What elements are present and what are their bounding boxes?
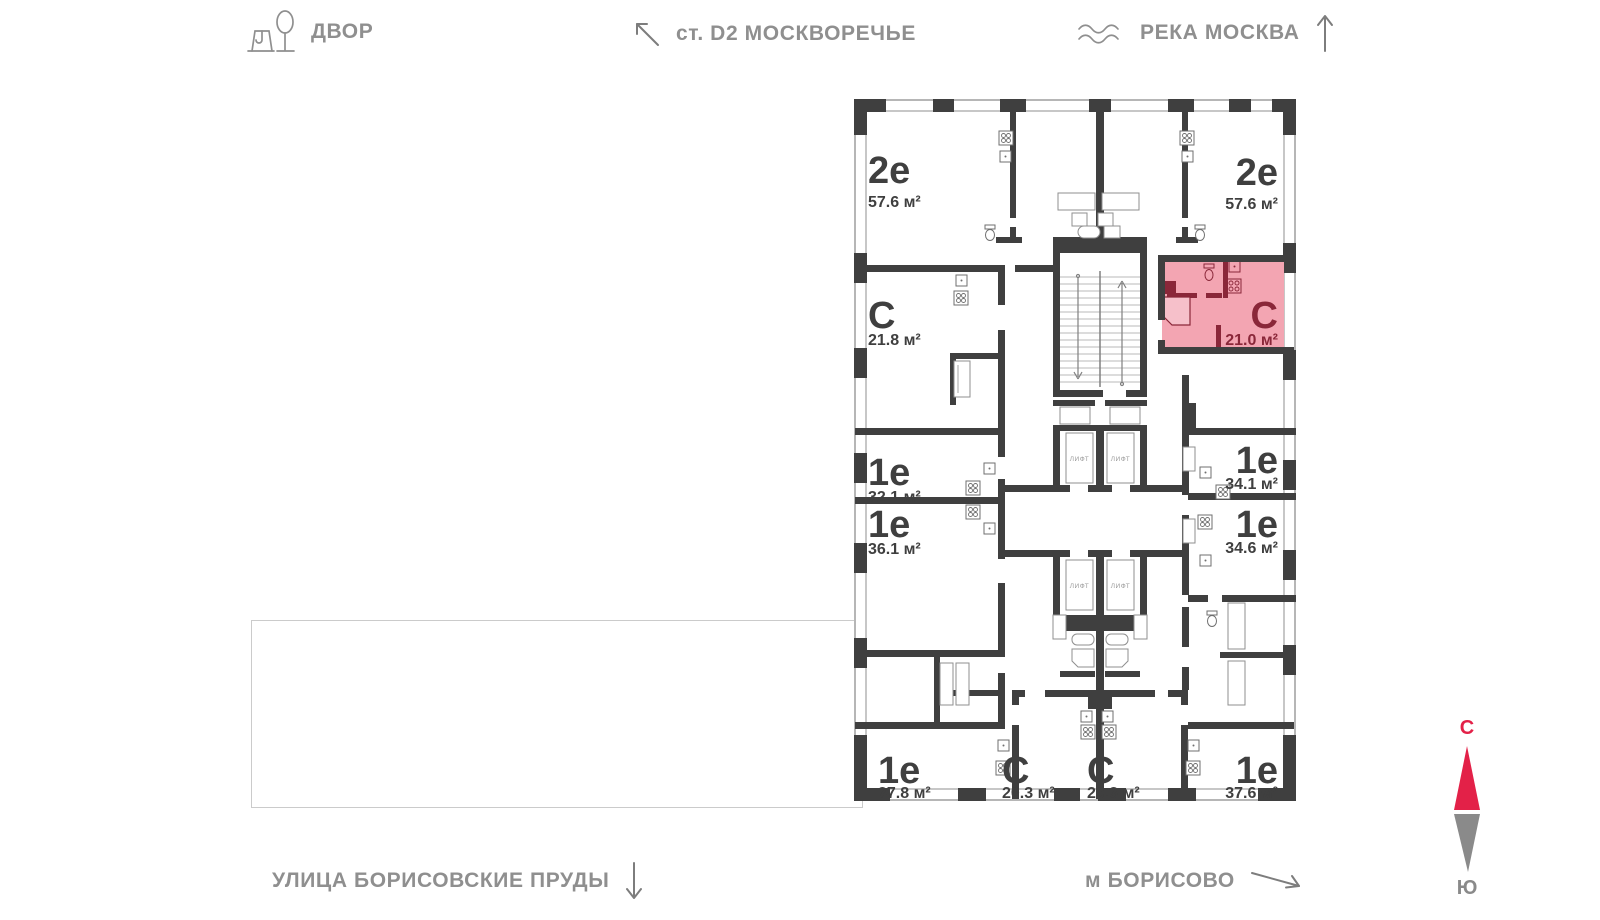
svg-text:57.6 м²: 57.6 м²	[1225, 196, 1278, 213]
courtyard-icon	[243, 9, 297, 55]
elevator-label: ЛИФТ	[1070, 456, 1090, 463]
svg-text:С: С	[1251, 295, 1278, 337]
svg-text:34.6 м²: 34.6 м²	[1225, 540, 1278, 557]
arrow-up-left-icon	[632, 19, 662, 49]
arrow-up-icon	[1314, 12, 1336, 54]
svg-text:1е: 1е	[868, 504, 910, 546]
station-label-group: ст. D2 МОСКВОРЕЧЬЕ	[632, 14, 916, 54]
floor-plan-svg: ЛИФТ ЛИФТ ЛИФТ ЛИФТ	[850, 95, 1300, 805]
station-label: ст. D2 МОСКВОРЕЧЬЕ	[676, 22, 916, 46]
courtyard-label: ДВОР	[311, 20, 373, 44]
svg-text:2е: 2е	[868, 150, 910, 192]
svg-text:21.0 м²: 21.0 м²	[1225, 332, 1278, 349]
elevator-label: ЛИФТ	[1111, 456, 1131, 463]
waves-icon	[1076, 18, 1126, 48]
svg-text:1е: 1е	[868, 452, 910, 494]
svg-text:С: С	[868, 295, 895, 337]
river-label-group: РЕКА МОСКВА	[1076, 10, 1336, 56]
svg-text:37.8 м²: 37.8 м²	[878, 785, 931, 802]
svg-text:34.1 м²: 34.1 м²	[1225, 476, 1278, 493]
street-label-group: УЛИЦА БОРИСОВСКИЕ ПРУДЫ	[272, 860, 645, 902]
svg-text:20.3 м²: 20.3 м²	[1087, 785, 1140, 802]
compass-south-label: Ю	[1457, 877, 1478, 899]
courtyard-label-group: ДВОР	[243, 8, 373, 56]
compass-north-needle	[1454, 746, 1480, 810]
street-label: УЛИЦА БОРИСОВСКИЕ ПРУДЫ	[272, 869, 609, 893]
arrow-down-icon	[623, 860, 645, 902]
svg-text:21.8 м²: 21.8 м²	[868, 332, 921, 349]
svg-text:37.6 м²: 37.6 м²	[1225, 785, 1278, 802]
svg-text:57.6 м²: 57.6 м²	[868, 194, 921, 211]
svg-text:2е: 2е	[1236, 152, 1278, 194]
arrow-down-right-icon	[1249, 868, 1305, 894]
compass-north-label: С	[1460, 717, 1474, 739]
floor-plan-page: ДВОР ст. D2 МОСКВОРЕЧЬЕ РЕКА МОСКВА УЛИЦ…	[0, 0, 1600, 920]
adjacent-building-outline	[251, 620, 863, 808]
svg-text:20.3 м²: 20.3 м²	[1002, 785, 1055, 802]
svg-text:36.1 м²: 36.1 м²	[868, 541, 921, 558]
metro-label-group: м БОРИСОВО	[1085, 860, 1305, 902]
compass-south-needle	[1454, 814, 1480, 872]
compass: С Ю	[1441, 706, 1493, 906]
elevator-label: ЛИФТ	[1111, 583, 1131, 590]
river-label: РЕКА МОСКВА	[1140, 21, 1300, 45]
metro-label: м БОРИСОВО	[1085, 869, 1235, 893]
elevator-label: ЛИФТ	[1070, 583, 1090, 590]
